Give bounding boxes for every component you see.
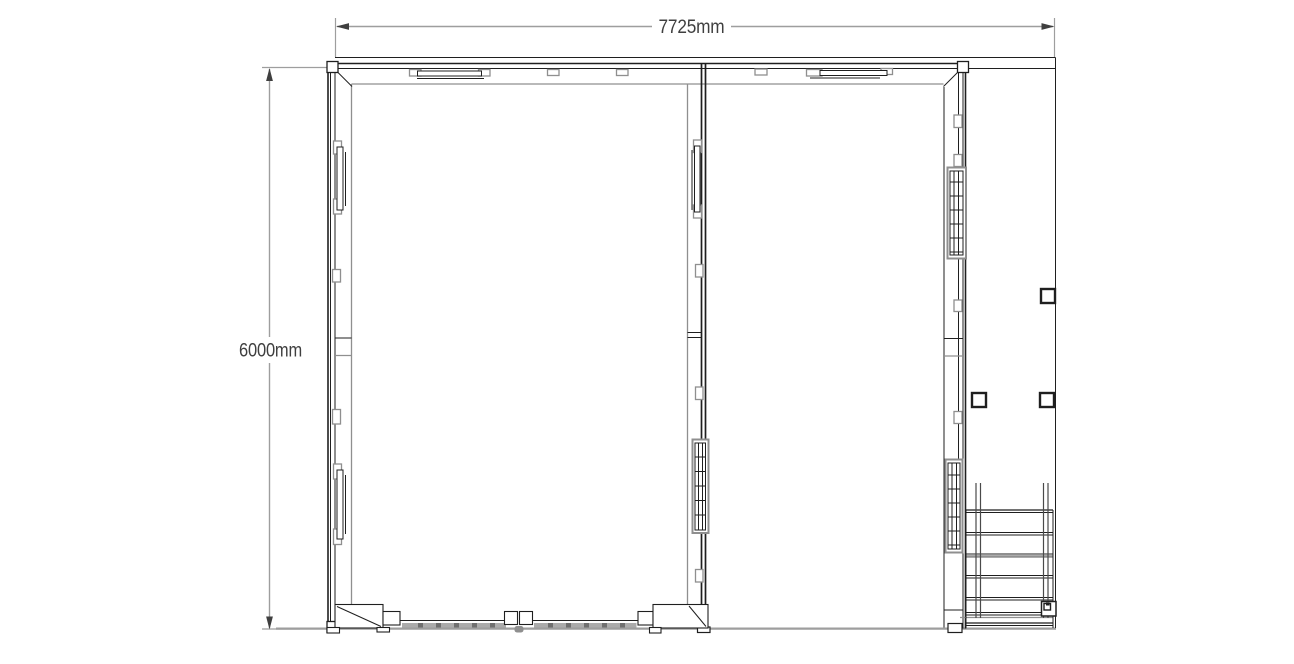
window-frame-bar xyxy=(820,71,887,76)
arrowhead-up-icon xyxy=(266,68,273,81)
stair-gate-symbol xyxy=(1042,602,1057,617)
wall-tab xyxy=(548,70,560,76)
corner-details xyxy=(327,62,969,633)
left-dimension: 6000mm xyxy=(239,68,328,630)
deck-posts xyxy=(972,289,1055,407)
width-dimension-label: 7725mm xyxy=(659,17,725,38)
door-handle-knob xyxy=(515,626,524,633)
door-meeting-stile xyxy=(520,612,533,625)
deck-post xyxy=(1040,393,1054,407)
arrowhead-down-icon xyxy=(266,617,273,630)
wall-foot-pad xyxy=(377,628,390,633)
bottom-wall-left-room xyxy=(327,605,708,634)
ladder-window xyxy=(693,440,709,534)
cad-canvas: 7725mm 6000mm xyxy=(0,0,1294,664)
corner-diagonal xyxy=(338,72,353,87)
corner-cap xyxy=(327,62,338,73)
bottom-corner-block xyxy=(653,605,708,629)
drawing-area: 7725mm 6000mm xyxy=(0,0,1294,664)
top-window-left xyxy=(410,70,491,79)
window-inner-frame xyxy=(950,171,963,255)
wall-tab xyxy=(333,410,341,425)
arrowhead-right-icon xyxy=(1042,23,1055,30)
interior-lines xyxy=(352,84,944,604)
wall-tab xyxy=(333,270,341,283)
window-frame-bar xyxy=(337,147,343,210)
wall-window-panel xyxy=(692,140,702,218)
window-frame-bar xyxy=(337,470,343,539)
top-wall-features xyxy=(410,69,893,79)
wall-tab xyxy=(755,69,767,75)
wall-tab xyxy=(954,300,962,312)
top-dimension: 7725mm xyxy=(336,17,1055,57)
wall-tab xyxy=(954,115,962,128)
height-dimension-label: 6000mm xyxy=(239,341,302,362)
wall-tab xyxy=(696,570,704,583)
wall-tab xyxy=(954,155,962,167)
wall-tab xyxy=(696,265,704,278)
door-jamb-block xyxy=(638,612,653,626)
wall-foot-pad xyxy=(948,624,962,633)
corner-cap xyxy=(958,62,969,73)
window-frame-bar xyxy=(418,71,482,76)
door-jamb-block xyxy=(383,612,400,626)
window-frame-bar xyxy=(695,146,701,212)
wall-foot-pad xyxy=(327,628,340,634)
window-inner-frame xyxy=(948,463,960,549)
ladder-window xyxy=(948,168,967,259)
wall-tab xyxy=(696,387,704,400)
wall-tab xyxy=(954,412,962,424)
wall-foot-pad xyxy=(650,628,662,634)
wall-tab xyxy=(617,70,629,76)
ladder-window xyxy=(946,460,963,553)
door-meeting-stile xyxy=(505,612,518,625)
deck-post xyxy=(972,393,986,407)
corner-diagonal xyxy=(944,73,958,87)
deck-post xyxy=(1041,289,1055,303)
arrowhead-left-icon xyxy=(336,23,349,30)
staircase xyxy=(960,483,1056,628)
top-window-right xyxy=(807,69,893,79)
